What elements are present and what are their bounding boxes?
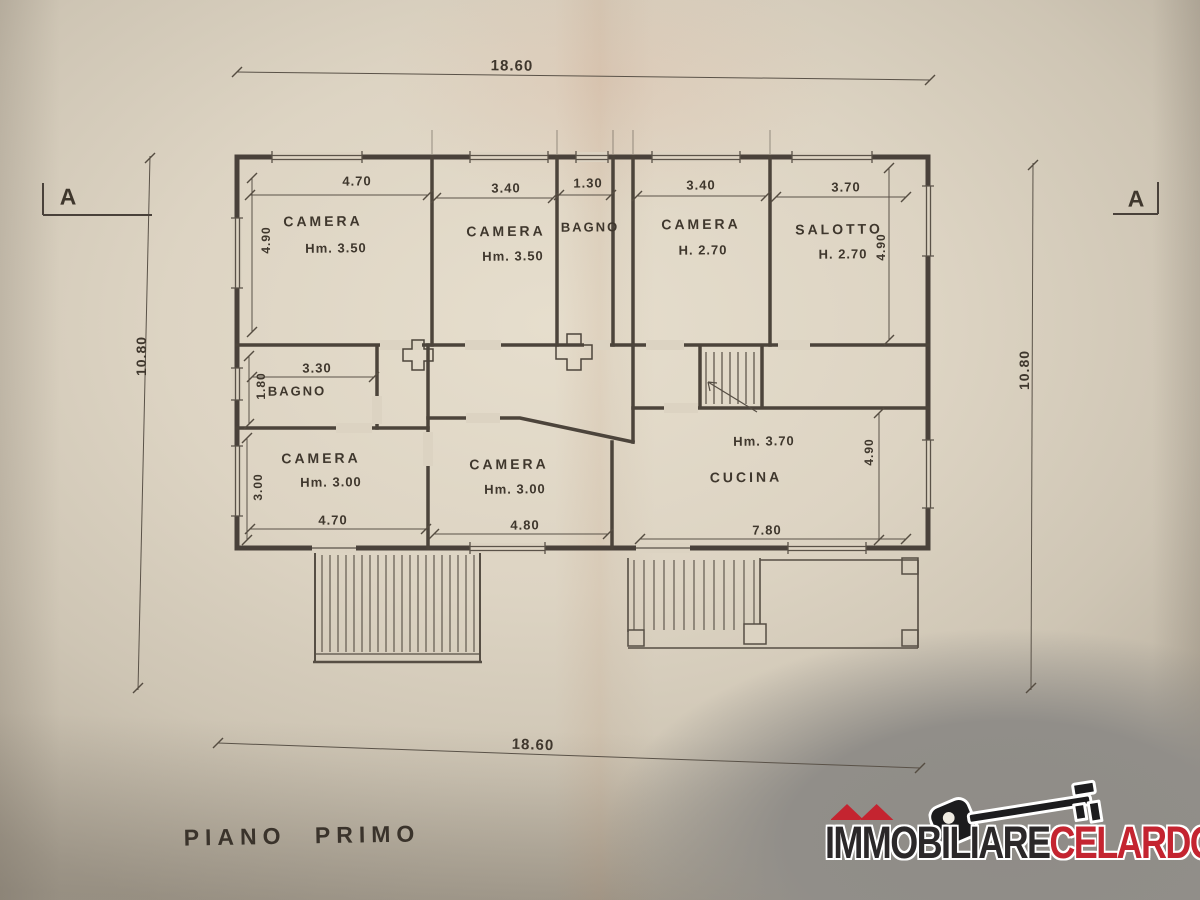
room-1-width-dim: 3.40	[491, 180, 520, 195]
dim-overall-right: 10.80	[1016, 350, 1032, 390]
room-2-name: BAGNO	[561, 219, 620, 235]
dim-overall-top: 18.60	[491, 57, 534, 74]
dim-overall-bottom: 18.60	[511, 736, 554, 754]
room-4-height: H. 2.70	[818, 246, 867, 262]
room-6-height: Hm. 3.00	[300, 474, 362, 490]
room-4-width-dim: 3.70	[831, 179, 860, 194]
room-4-depth-dim: 4.90	[874, 233, 888, 260]
logo-accent: CELARDO	[1049, 817, 1200, 868]
room-8-width-dim: 7.80	[752, 522, 781, 537]
logo-mm-letters: MM	[833, 817, 890, 868]
floorplan-drawing	[0, 0, 1200, 900]
room-4-name: SALOTTO	[795, 221, 883, 238]
room-7-width-dim: 4.80	[510, 517, 539, 532]
room-0-height: Hm. 3.50	[305, 240, 367, 256]
room-5-name: BAGNO	[268, 383, 327, 399]
room-8-name: CUCINA	[710, 469, 783, 486]
floorplan-photo: 18.60 18.60 10.80 10.80 A A CAMERA Hm. 3…	[0, 0, 1200, 900]
logo-prefix: I	[825, 817, 833, 868]
room-7-name: CAMERA	[469, 456, 549, 473]
room-0-name: CAMERA	[283, 213, 363, 230]
room-7-height: Hm. 3.00	[484, 481, 546, 497]
room-3-width-dim: 3.40	[686, 177, 715, 192]
room-1-name: CAMERA	[466, 223, 546, 240]
house-roof-icon	[860, 804, 894, 820]
agency-logo-text: IMMOBILIARECELARDO®	[825, 817, 1200, 869]
room-6-depth-dim: 3.00	[251, 473, 265, 500]
room-3-name: CAMERA	[661, 216, 741, 233]
room-8-height: Hm. 3.70	[733, 433, 795, 449]
room-5-depth-dim: 1.80	[254, 372, 268, 399]
room-6-name: CAMERA	[281, 450, 361, 467]
stairs-balcony-right	[628, 558, 918, 648]
room-8-depth-dim: 4.90	[862, 438, 876, 465]
internal-stairs	[706, 352, 757, 412]
room-3-height: H. 2.70	[678, 242, 727, 258]
room-0-depth-dim: 4.90	[259, 226, 273, 253]
room-6-width-dim: 4.70	[318, 512, 347, 527]
section-marker-right: A	[1128, 185, 1145, 212]
terrace-stairs-left	[313, 553, 482, 662]
logo-suffix: OBILIARE	[890, 817, 1049, 868]
agency-logo: IMMOBILIARECELARDO®	[823, 784, 1200, 884]
room-2-width-dim: 1.30	[573, 175, 602, 190]
section-marker-left: A	[60, 183, 77, 210]
house-roof-icon	[830, 804, 864, 820]
dimension-ticks	[133, 67, 1038, 773]
logo-mm-houses: MM	[833, 817, 890, 869]
room-5-width-dim: 3.30	[302, 360, 331, 375]
room-0-width-dim: 4.70	[342, 173, 371, 188]
room-1-height: Hm. 3.50	[482, 248, 544, 264]
windows	[231, 151, 934, 554]
plan-title: PIANO PRIMO	[183, 820, 420, 851]
dim-overall-left: 10.80	[133, 336, 149, 376]
